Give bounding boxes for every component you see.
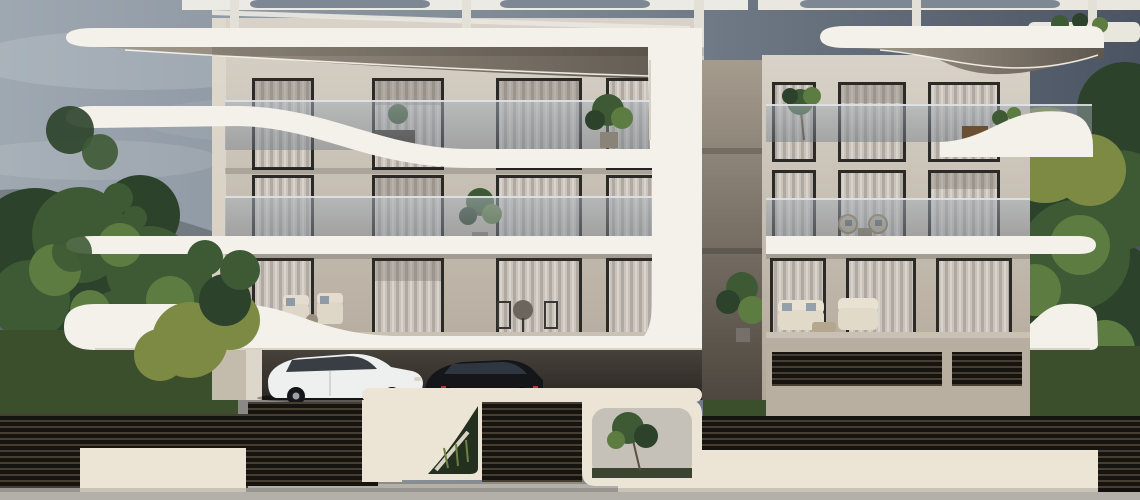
handrail [225,196,702,198]
wing-base [766,350,1030,420]
balcony-slab-1 [66,236,702,254]
handrail [766,198,1030,200]
wing-ground-floor [766,258,1030,338]
wall-panel-left [80,448,246,492]
window [936,258,1012,338]
louvre-vent [772,352,942,386]
wing-terrace-floor [766,332,1030,338]
wall-tree-opening [582,400,702,486]
window [496,258,582,338]
fence-far-right [1098,416,1140,492]
window [372,258,444,338]
wing-slab-1 [766,236,1096,254]
wall-cutout-planter [400,400,482,480]
fence-mid [248,402,378,486]
handrail [225,100,702,102]
louvre-vent [952,352,1022,386]
architectural-render [0,0,1140,500]
wall-top-beam [362,388,702,402]
fence-shadow [0,488,1140,492]
alley [702,60,766,400]
wall-post-left [362,400,402,482]
entrance-gate [482,402,582,482]
headlight [414,377,421,381]
entrance-wall [362,388,702,486]
carport-pillar [246,348,262,400]
handrail [766,104,1092,106]
